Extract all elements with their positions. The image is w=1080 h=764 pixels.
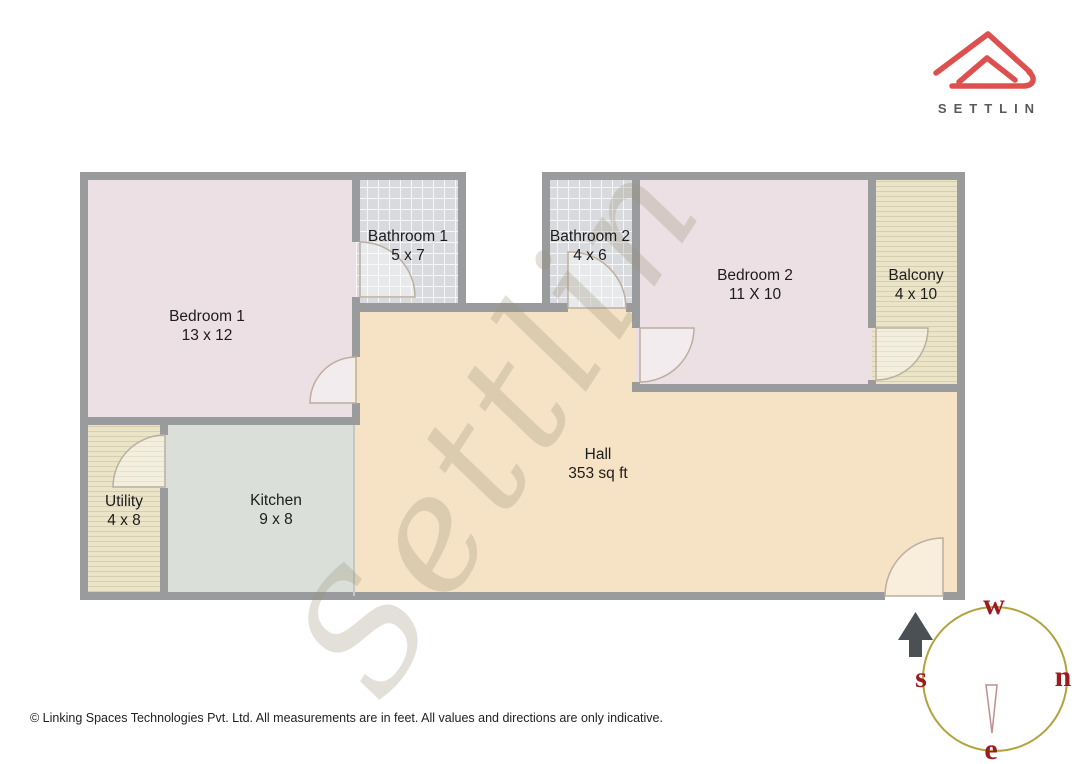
wall-top-left — [80, 172, 466, 180]
wall-bathroom1-right — [458, 172, 466, 312]
compass-ring — [923, 607, 1067, 751]
room-label-bathroom-1: Bathroom 1 5 x 7 — [368, 227, 448, 265]
bedroom-1-floor — [84, 176, 356, 421]
wall-bottom-left — [80, 592, 885, 600]
room-name: Bedroom 2 — [717, 266, 793, 285]
room-name: Utility — [105, 492, 143, 511]
room-name: Bathroom 2 — [550, 227, 630, 246]
wall-utility-right-b — [160, 488, 168, 600]
wall-utility-right-a — [160, 425, 168, 435]
room-label-hall: Hall 353 sq ft — [568, 445, 627, 483]
room-label-bathroom-2: Bathroom 2 4 x 6 — [550, 227, 630, 265]
room-name: Bedroom 1 — [169, 307, 245, 326]
copyright-text: © Linking Spaces Technologies Pvt. Ltd. … — [30, 711, 663, 725]
room-dims: 5 x 7 — [368, 246, 448, 265]
floor-plan-page: SETTLIN Settlin — [0, 0, 1080, 764]
compass-south-label: s — [915, 661, 927, 694]
brand-name: SETTLIN — [930, 101, 1042, 116]
wall-top-right — [542, 172, 965, 180]
brand-logo: SETTLIN — [930, 26, 1042, 116]
compass-west-label: w — [983, 590, 1005, 621]
compass: w n e s — [905, 590, 1080, 764]
compass-north-label: n — [1055, 660, 1072, 693]
room-name: Balcony — [888, 266, 943, 285]
room-dims: 4 x 10 — [888, 285, 943, 304]
wall-bedroom1-bottom — [80, 417, 360, 425]
wall-bedroom1-right-a — [352, 172, 360, 242]
wall-bathroom2-left — [542, 172, 550, 312]
room-name: Kitchen — [250, 491, 302, 510]
room-label-bedroom-2: Bedroom 2 11 X 10 — [717, 266, 793, 304]
room-dims: 353 sq ft — [568, 464, 627, 483]
room-name: Bathroom 1 — [368, 227, 448, 246]
house-logo-icon — [930, 26, 1042, 94]
room-dims: 4 x 8 — [105, 511, 143, 530]
room-label-bedroom-1: Bedroom 1 13 x 12 — [169, 307, 245, 345]
hall-floor-lower — [636, 388, 961, 596]
compass-needle — [986, 685, 997, 733]
room-label-utility: Utility 4 x 8 — [105, 492, 143, 530]
kitchen-hall-separator — [353, 425, 355, 596]
room-label-kitchen: Kitchen 9 x 8 — [250, 491, 302, 529]
wall-bedroom2-bottom — [632, 384, 965, 392]
wall-mid-horizontal-a — [352, 303, 568, 312]
wall-balcony-left-b — [868, 380, 876, 392]
wall-balcony-left-a — [868, 172, 876, 328]
room-label-balcony: Balcony 4 x 10 — [888, 266, 943, 304]
room-dims: 9 x 8 — [250, 510, 302, 529]
room-dims: 11 X 10 — [717, 285, 793, 304]
room-dims: 13 x 12 — [169, 326, 245, 345]
room-dims: 4 x 6 — [550, 246, 630, 265]
wall-left — [80, 172, 88, 600]
compass-east-label: e — [984, 733, 997, 764]
wall-bedroom2-left-a — [632, 172, 640, 328]
room-name: Hall — [568, 445, 627, 464]
